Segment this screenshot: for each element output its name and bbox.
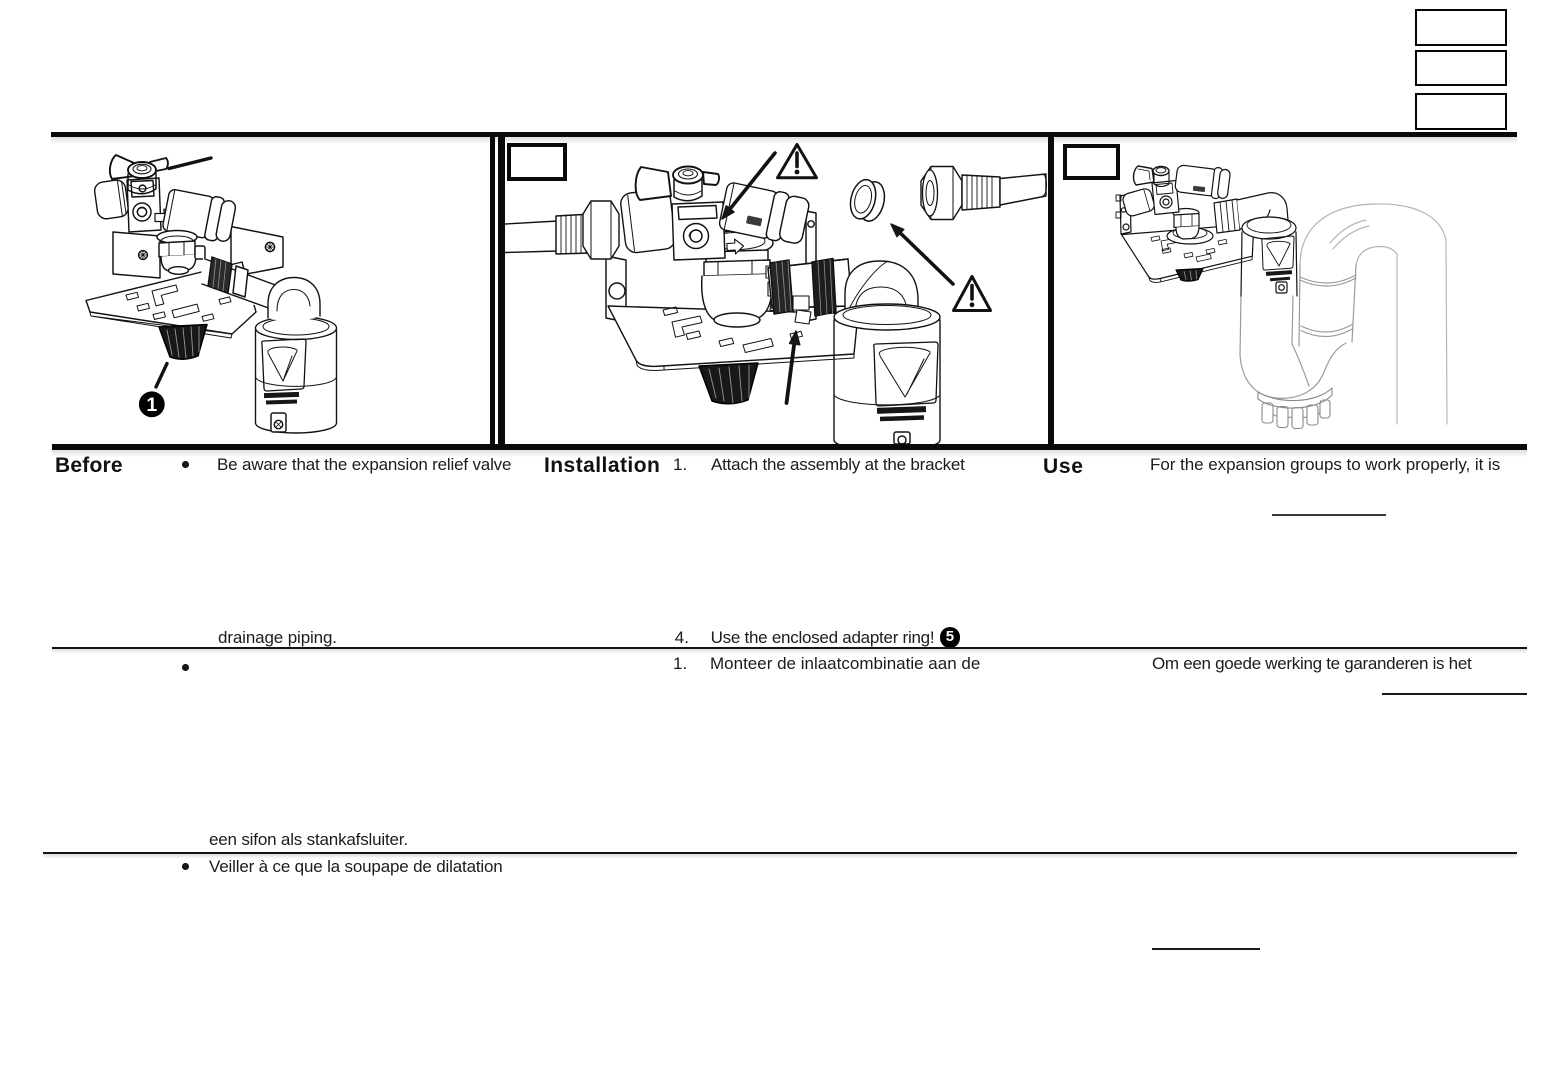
svg-text:1: 1: [146, 394, 157, 416]
